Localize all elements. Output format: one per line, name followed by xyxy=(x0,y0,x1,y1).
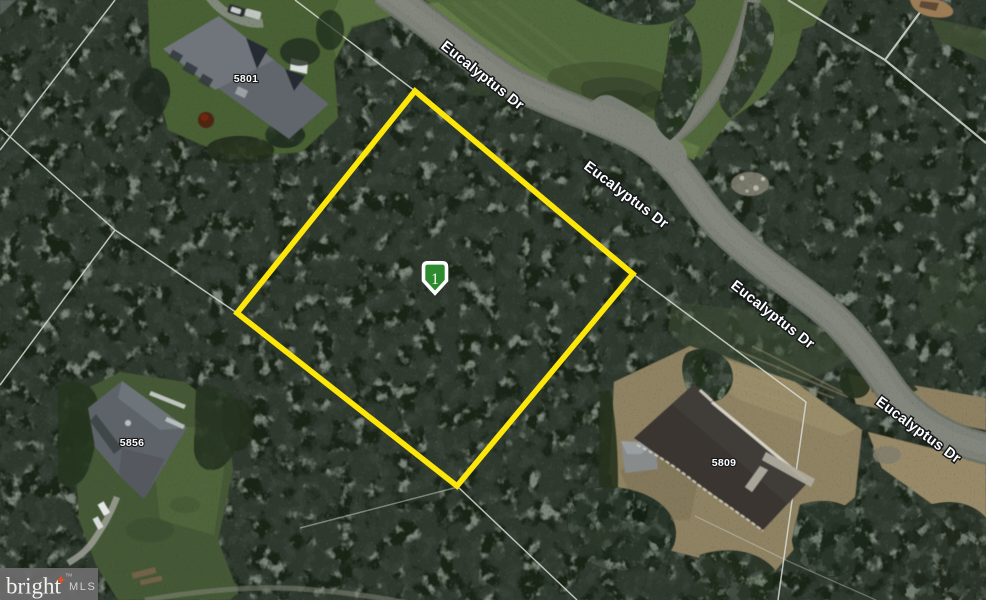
svg-text:1: 1 xyxy=(431,271,439,288)
svg-text:bright: bright xyxy=(6,574,62,599)
svg-text:TM: TM xyxy=(66,573,73,578)
svg-text:5856: 5856 xyxy=(120,437,145,449)
svg-text:MLS: MLS xyxy=(69,581,96,593)
svg-text:5801: 5801 xyxy=(234,73,259,85)
svg-text:5809: 5809 xyxy=(712,457,737,469)
